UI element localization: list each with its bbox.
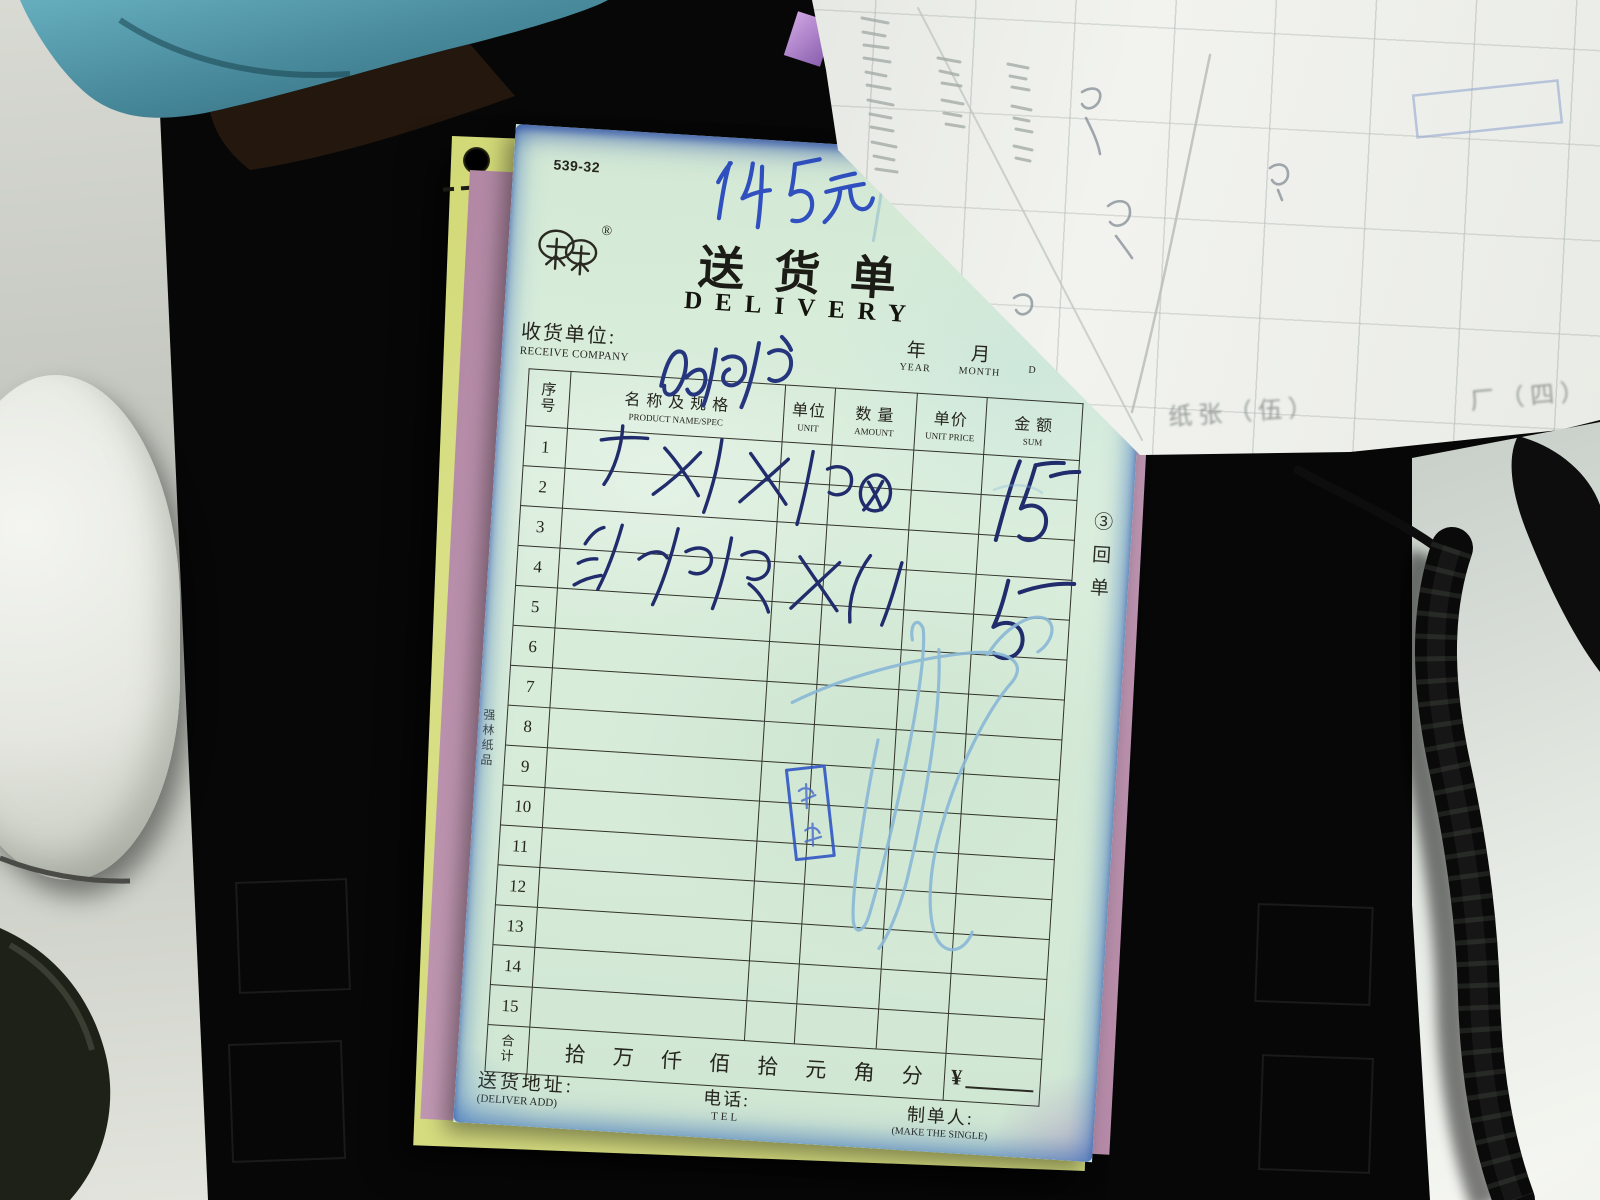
total-label: 合计 xyxy=(499,1034,516,1065)
amount-underline xyxy=(965,1078,1033,1092)
currency-symbol: ¥ xyxy=(950,1064,963,1091)
telephone-label: 电话: TEL xyxy=(702,1084,751,1125)
year-en: YEAR xyxy=(899,362,931,375)
photo-scene: 539-32 ® 送货单 DELIVERY № 33 收货单位: RECEIVE… xyxy=(0,0,1600,1200)
maker-label: 制单人: (MAKE THE SINGLE) xyxy=(891,1100,989,1143)
col-amount-cn: 数 量 xyxy=(834,399,916,428)
day-en-partial: D xyxy=(1028,365,1036,376)
items-table: 序号 名 称 及 规 格 PRODUCT NAME/SPEC 单位 UNIT 数… xyxy=(484,368,1083,1107)
col-price-en: UNIT PRICE xyxy=(915,430,984,444)
col-sum-cn: 金 额 xyxy=(986,408,1082,438)
ghost-blue-box xyxy=(1413,80,1562,137)
ghost-handwriting xyxy=(1014,89,1288,315)
form-code: 539-32 xyxy=(553,156,601,175)
col-price-cn: 单价 xyxy=(916,404,986,432)
col-index: 序号 xyxy=(538,382,558,416)
year-cn: 年 xyxy=(900,335,933,364)
month-cn: 月 xyxy=(959,338,1002,368)
desk-groove xyxy=(228,1040,346,1163)
crease-curve xyxy=(1132,55,1210,412)
desk-groove xyxy=(235,878,351,994)
month-en: MONTH xyxy=(958,365,1000,379)
handwritten-amount-note xyxy=(715,152,875,230)
ghost-glyph-column xyxy=(862,18,1032,172)
copy-number-vertical: ③回单 xyxy=(1078,511,1116,687)
deliver-address-label: 送货地址: (DELIVER ADD) xyxy=(476,1066,575,1111)
desk-groove xyxy=(1258,1054,1374,1174)
receive-company-labels: 收货单位: RECEIVE COMPANY xyxy=(519,315,631,364)
col-unit-cn: 单位 xyxy=(784,395,834,422)
col-unit-en: UNIT xyxy=(783,421,833,434)
desk-groove xyxy=(1254,903,1373,1006)
date-header: 年 YEAR 月 MONTH D xyxy=(899,335,1037,381)
